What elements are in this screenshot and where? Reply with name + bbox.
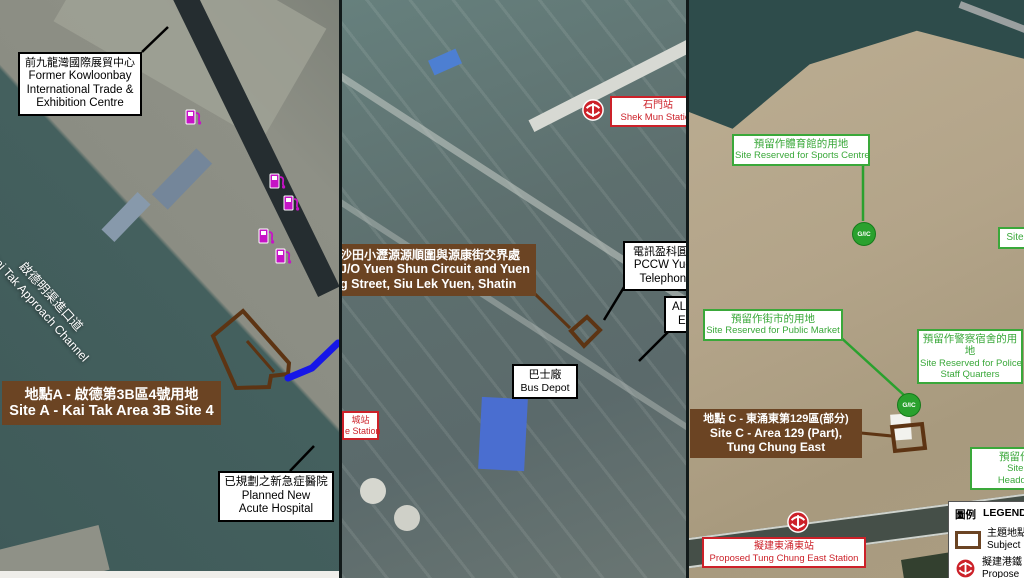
al-label-line: E <box>672 315 686 329</box>
headquarters-clipped-label: 預留作地 Site R Headquart <box>970 447 1024 490</box>
shek-mun-station-label: 石門站 Shek Mun Station <box>610 96 686 127</box>
shek-mun-zh: 石門站 <box>614 100 686 112</box>
market-zh: 預留作街市的用地 <box>706 313 840 325</box>
legend-title-zh: 圖例 <box>955 507 976 522</box>
site-b-title-label: 沙田小瀝源源順圍與源康街交界處 J/O Yuen Shun Circuit an… <box>342 244 536 296</box>
pccw-exchange-label: 電訊盈科圓洲 PCCW Yuen Telephone <box>623 241 686 291</box>
legend-item-proposed-station: 擬建港鐵 Propose <box>955 557 1024 578</box>
terrain-building <box>890 413 912 440</box>
mtr-station-icon <box>582 99 604 121</box>
hospital-label-en: Acute Hospital <box>224 503 328 517</box>
al-label: AL E <box>664 296 686 333</box>
legend-title: 圖例 LEGEND <box>955 507 1024 522</box>
terrain-warehouse <box>152 148 212 209</box>
leader-line <box>837 334 905 396</box>
police-en: Staff Quarters <box>920 369 1020 380</box>
al-label-line: AL <box>672 301 686 315</box>
site-c-title-en: Site C - Area 129 (Part), <box>692 426 860 440</box>
panel-bottom-strip <box>0 571 339 578</box>
site-c-title-label: 地點 C - 東涌東第129區(部分) Site C - Area 129 (P… <box>690 409 862 458</box>
site-a-title-zh: 地點A - 啟德第3B區4號用地 <box>6 386 217 403</box>
site-c-title-zh: 地點 C - 東涌東第129區(部分) <box>692 413 860 426</box>
leader-line <box>639 331 669 361</box>
bus-depot-en: Bus Depot <box>518 382 572 394</box>
hospital-label: 已規劃之新急症醫院 Planned New Acute Hospital <box>218 471 334 522</box>
site-reserved-clipped-label: Site R <box>998 227 1024 249</box>
sports-en: Site Reserved for Sports Centre <box>735 150 867 161</box>
fuel-station-icon <box>274 243 292 265</box>
fuel-station-icon <box>257 223 275 245</box>
map-panel-site-b: 城站 e Station 石門站 Shek Mun Station 沙田小瀝源源… <box>342 0 686 578</box>
bus-depot-zh: 巴士廠 <box>518 369 572 382</box>
site-a-title-label: 地點A - 啟德第3B區4號用地 Site A - Kai Tak Area 3… <box>2 381 221 425</box>
legend-item-text: 主題地點 Subject <box>987 528 1024 551</box>
terrain-solar-panels <box>478 397 528 471</box>
sports-centre-label: 預留作體育館的用地 Site Reserved for Sports Centr… <box>732 134 870 166</box>
site-c-title-en: Tung Chung East <box>692 440 860 454</box>
map-panel-site-a: 前九龍灣國際展貿中心 Former Kowloonbay Internation… <box>0 0 339 578</box>
hq-zh: 預留作地 <box>973 451 1024 463</box>
subject-site-boundary-icon <box>955 531 981 549</box>
fuel-station-icon <box>184 104 202 126</box>
kowloonbay-label-zh: 前九龍灣國際展貿中心 <box>24 57 136 70</box>
site-a-boundary-divider <box>247 341 274 372</box>
kowloonbay-label-en: Exhibition Centre <box>24 97 136 111</box>
public-market-label: 預留作街市的用地 Site Reserved for Public Market <box>703 309 843 341</box>
kowloonbay-label-en: Former Kowloonbay <box>24 70 136 84</box>
legend: 圖例 LEGEND 主題地點 Subject 擬建港鐵 Propose <box>948 501 1024 578</box>
fuel-station-icon <box>282 190 300 212</box>
terrain-warehouse <box>101 192 150 242</box>
hospital-label-zh: 已規劃之新急症醫院 <box>224 476 328 490</box>
hq-en: Site R <box>973 463 1024 474</box>
mtr-station-icon <box>955 558 976 578</box>
leader-line <box>290 446 314 471</box>
site-b-title-zh: 沙田小瀝源源順圍與源康街交界處 <box>342 248 530 262</box>
legend-item-subject-site: 主題地點 Subject <box>955 528 1024 551</box>
shek-mun-en: Shek Mun Station <box>614 112 686 123</box>
map-panel-site-c: 預留作體育館的用地 Site Reserved for Sports Centr… <box>689 0 1024 578</box>
police-en: Site Reserved for Police <box>920 358 1020 369</box>
police-quarters-label: 預留作警察宿舍的用地 Site Reserved for Police Staf… <box>917 329 1023 384</box>
station-label-zh: 城站 <box>345 415 376 426</box>
kowloonbay-label: 前九龍灣國際展貿中心 Former Kowloonbay Internation… <box>18 52 142 116</box>
site-b-title-en: g Street, Siu Lek Yuen, Shatin <box>342 277 530 292</box>
site-b-title-en: J/O Yuen Shun Circuit and Yuen <box>342 262 530 277</box>
site-a-title-en: Site A - Kai Tak Area 3B Site 4 <box>6 403 217 420</box>
gic-marker: G/IC <box>852 222 876 246</box>
pccw-zh: 電訊盈科圓洲 <box>627 246 686 259</box>
gic-marker-text: G/IC <box>902 402 915 409</box>
terrain-building <box>360 478 386 504</box>
leader-line <box>533 292 570 328</box>
pccw-en: PCCW Yuen <box>627 259 686 273</box>
mtr-station-icon <box>787 511 809 533</box>
proposed-station-zh: 擬建東涌東站 <box>705 541 863 553</box>
channel-label-zh: 啟德明渠進口道 <box>0 234 108 360</box>
legend-title-en: LEGEND <box>983 507 1024 522</box>
terrain-pool <box>428 49 462 76</box>
legend-item-zh: 擬建港鐵 <box>982 557 1022 569</box>
legend-item-en: Subject <box>987 540 1024 552</box>
legend-item-zh: 主題地點 <box>987 528 1024 540</box>
site-a-boundary <box>213 311 289 388</box>
proposed-road-line <box>288 343 338 378</box>
proposed-station-label: 擬建東涌東站 Proposed Tung Chung East Station <box>702 537 866 568</box>
sports-zh: 預留作體育館的用地 <box>735 138 867 150</box>
channel-label: 啟德明渠進口道 Kai Tak Approach Channel <box>0 234 108 370</box>
gic-marker-text: G/IC <box>857 231 870 238</box>
market-en: Site Reserved for Public Market <box>706 325 840 336</box>
legend-item-en: Propose <box>982 569 1022 578</box>
site-b-boundary <box>571 317 600 346</box>
city-one-station-label: 城站 e Station <box>342 411 379 440</box>
police-zh: 預留作警察宿舍的用地 <box>920 333 1020 358</box>
bus-depot-label: 巴士廠 Bus Depot <box>512 364 578 399</box>
gic-marker: G/IC <box>897 393 921 417</box>
terrain-building <box>394 505 420 531</box>
fuel-station-icon <box>268 168 286 190</box>
pccw-en: Telephone <box>627 273 686 287</box>
legend-item-text: 擬建港鐵 Propose <box>982 557 1022 578</box>
proposed-station-en: Proposed Tung Chung East Station <box>705 553 863 564</box>
hospital-label-en: Planned New <box>224 490 328 504</box>
site-reserved-text: Site R <box>1001 232 1024 244</box>
terrain-water <box>689 0 1024 140</box>
map-composite: 前九龍灣國際展貿中心 Former Kowloonbay Internation… <box>0 0 1024 578</box>
hq-en: Headquart <box>973 475 1024 486</box>
leader-line <box>861 433 892 436</box>
kowloonbay-label-en: International Trade & <box>24 84 136 98</box>
station-label-en: e Station <box>345 426 376 437</box>
